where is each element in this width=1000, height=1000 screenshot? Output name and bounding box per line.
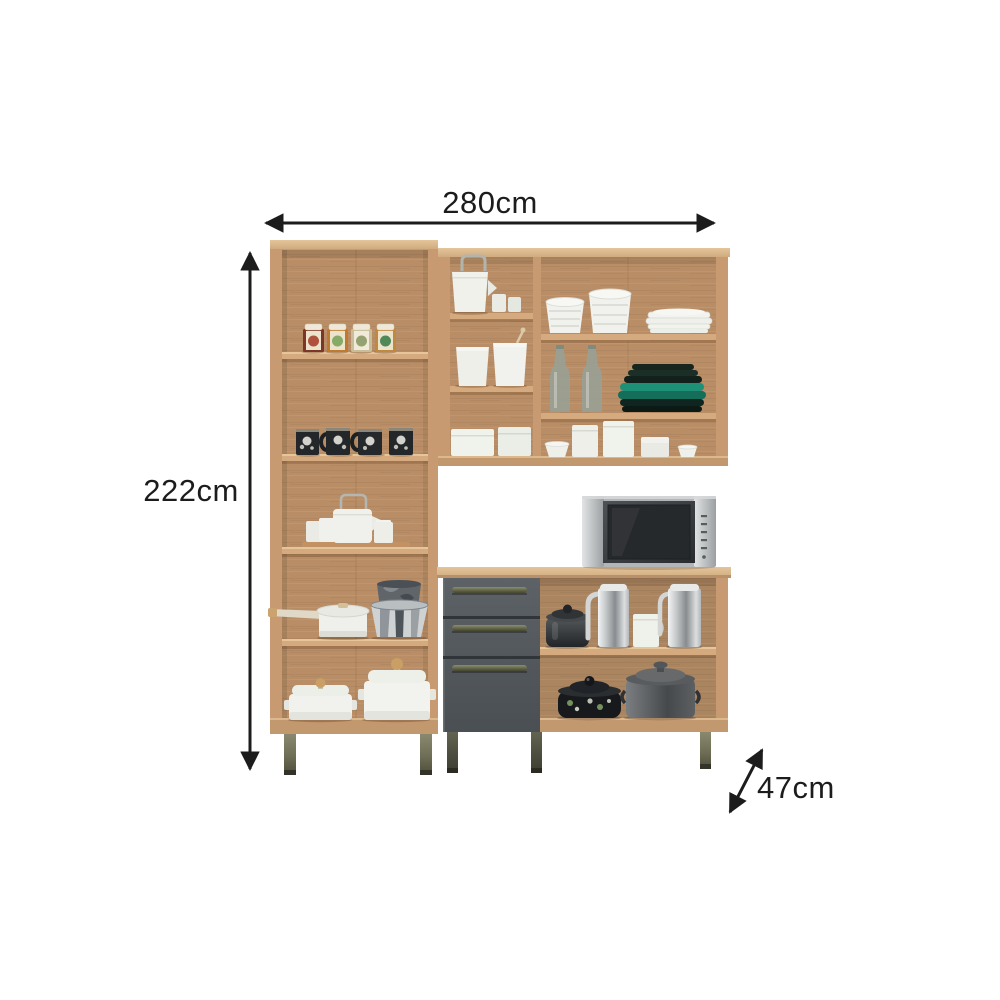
tall-cabinet (268, 240, 438, 775)
small-jar (508, 297, 521, 312)
cabinet-leg (447, 732, 458, 773)
storage-box (498, 427, 531, 456)
canister (493, 343, 527, 386)
height-dimension-label: 222cm (131, 475, 251, 506)
cabinet-leg (700, 732, 711, 769)
tea-cup (319, 518, 335, 542)
drawer-unit (443, 578, 540, 732)
microwave-left-panel (582, 496, 604, 567)
tall-cabinet-legs (284, 734, 432, 775)
kitchen-cabinet-dimension-diagram: 280cm 222cm 47cm (0, 0, 1000, 1000)
storage-box (451, 429, 494, 456)
drawer-handle (452, 665, 527, 673)
storage-boxes (451, 427, 531, 456)
mug (296, 429, 319, 455)
mug (389, 428, 413, 455)
canister (456, 347, 489, 386)
tall-cabinet-top (270, 240, 438, 249)
base-cabinet (437, 567, 731, 773)
width-dimension-label: 280cm (380, 187, 600, 218)
white-plate-stack (646, 309, 712, 334)
small-jar (492, 294, 506, 312)
drawer-handle (452, 625, 527, 633)
cabinet-leg (420, 734, 432, 775)
tin-orange (327, 324, 348, 352)
bowl-stack (589, 294, 631, 333)
tea-jar (374, 522, 393, 543)
upper-cabinet (438, 248, 730, 466)
drawer-handle (452, 587, 527, 595)
tin-green (375, 324, 396, 352)
small-canister (572, 425, 598, 457)
tin-cream (351, 324, 372, 352)
teal-plate-stack (618, 364, 706, 412)
microwave (582, 496, 716, 570)
tin-red (303, 324, 324, 352)
cabinet-leg (531, 732, 542, 773)
cabinet-leg (284, 734, 296, 775)
saucepan-knob (338, 603, 348, 608)
depth-dimension-label: 47cm (757, 772, 887, 803)
base-cabinet-right-panel (716, 578, 728, 732)
base-cabinet-bottom (540, 718, 728, 732)
drawer-fronts (443, 578, 540, 732)
tea-cup (306, 521, 321, 542)
base-cabinet-legs (447, 732, 711, 773)
bucket-front (371, 600, 428, 637)
